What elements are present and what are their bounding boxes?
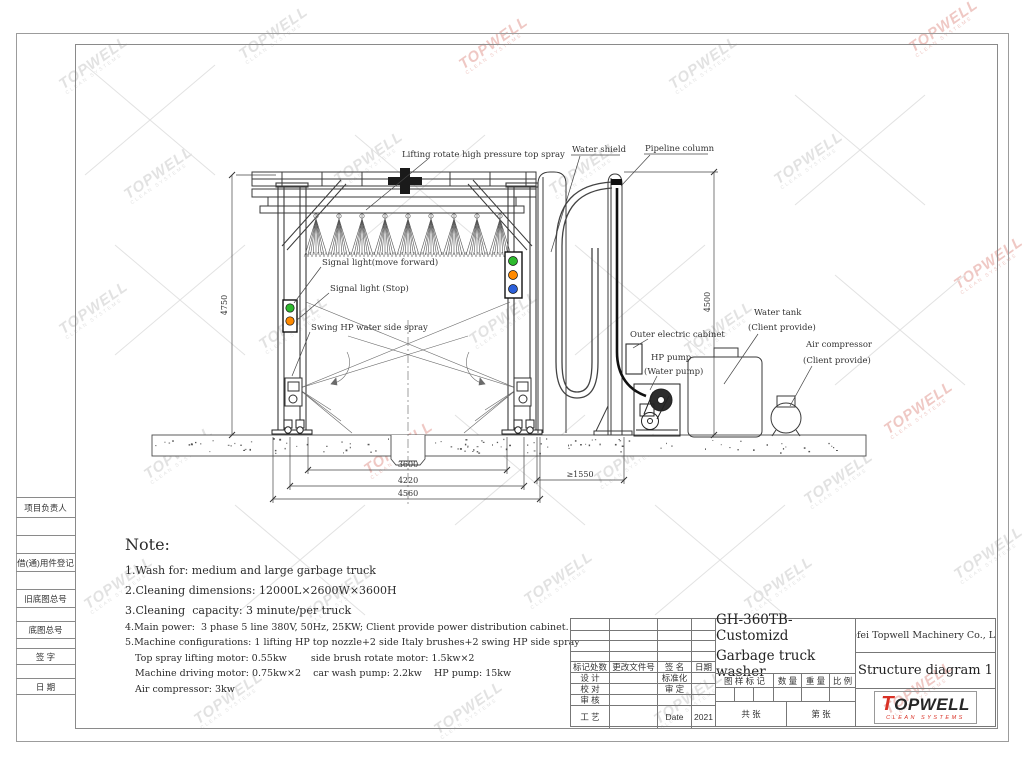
sheet-number-cell: 第 张	[786, 701, 855, 726]
title-block-revision-area: 标记处数 更改文件号 签 名 日期 设 计 标准化 校 对 审 定 审 核 工 …	[571, 619, 715, 726]
company-name: Hefei Topwell Machinery Co., Ltd.	[855, 619, 995, 652]
note-line: Machine driving motor: 0.75kw×2 car wash…	[125, 668, 575, 679]
ground-slab	[152, 435, 866, 456]
sheets-total-cell: 共 张	[715, 701, 786, 726]
rev-cell	[609, 640, 657, 651]
hp-hose-loop	[556, 182, 612, 398]
label-air-compressor-2: (Client provide)	[803, 355, 871, 366]
water-tank	[688, 348, 762, 437]
hose-top-fitting	[611, 179, 622, 185]
rev-cell	[657, 630, 691, 641]
rev-cell	[571, 651, 609, 662]
mark-cell	[773, 687, 801, 701]
pipeline-column	[594, 174, 632, 435]
label-outer-cabinet: Outer electric cabinet	[630, 330, 725, 340]
sig-cell	[609, 694, 657, 705]
sig-cell: 2021	[691, 705, 715, 728]
sig-cell: 审 定	[657, 683, 691, 694]
dim-clearance: ≥1550	[566, 470, 593, 479]
label-water-shield: Water shield	[572, 145, 627, 155]
rev-cell	[691, 640, 715, 651]
rev-header-cell: 日期	[691, 661, 715, 672]
rev-cell	[609, 651, 657, 662]
mark-header-cell: 重 量	[801, 673, 829, 687]
rev-cell	[657, 640, 691, 651]
note-title: Note:	[125, 535, 575, 554]
company-logo-cell: TOPWELL CLEAN SYSTEMS	[855, 688, 995, 726]
sig-cell: 校 对	[571, 683, 609, 694]
mark-header-cell: 数 量	[773, 673, 801, 687]
sig-cell	[691, 694, 715, 705]
drawing-sheet: TOPWELLCLEAN SYSTEMSTOPWELLCLEAN SYSTEMS…	[0, 0, 1024, 768]
title-block-product-area: GH-360TB-Customizd Garbage truck washer …	[715, 619, 855, 726]
label-hp-pump-2: (Water pump)	[644, 366, 703, 377]
mark-cell	[753, 687, 773, 701]
label-top-spray: Lifting rotate high pressure top spray	[402, 150, 565, 160]
note-line: 1.Wash for: medium and large garbage tru…	[125, 564, 575, 577]
document-title: Structure diagram 1	[855, 652, 995, 688]
note-line: 3.Cleaning capacity: 3 minute/per truck	[125, 604, 575, 617]
rev-cell	[571, 630, 609, 641]
rev-cell	[691, 651, 715, 662]
note-section: Note: 1.Wash for: medium and large garba…	[125, 535, 575, 695]
dim-height-right: 4500	[703, 292, 712, 312]
note-line: 2.Cleaning dimensions: 12000L×2600W×3600…	[125, 584, 575, 597]
sig-cell	[609, 683, 657, 694]
dim-width-inner: 3600	[398, 460, 418, 469]
note-line: Top spray lifting motor: 0.55kw side bru…	[125, 653, 575, 664]
logo-tagline: CLEAN SYSTEMS	[886, 715, 965, 721]
rev-cell	[609, 619, 657, 630]
rev-cell	[609, 630, 657, 641]
rev-cell	[571, 619, 609, 630]
sig-cell: 标准化	[657, 672, 691, 683]
label-swing-spray: Swing HP water side spray	[311, 323, 428, 333]
label-hp-pump: HP pump	[651, 353, 692, 363]
sig-cell: 审 核	[571, 694, 609, 705]
rev-cell	[691, 619, 715, 630]
rev-header-cell: 更改文件号	[609, 661, 657, 672]
note-line: Air compressor: 3kw	[125, 684, 575, 695]
mark-header-cell: 图 样 标 记	[715, 673, 773, 687]
label-water-tank-2: (Client provide)	[748, 322, 816, 333]
dim-height-left: 4750	[220, 295, 229, 315]
rev-header-cell: 签 名	[657, 661, 691, 672]
air-compressor	[771, 396, 801, 436]
sig-cell	[657, 694, 691, 705]
sig-cell: 设 计	[571, 672, 609, 683]
hp-pump-unit	[634, 384, 680, 436]
signal-light-right	[505, 252, 522, 298]
outer-electric-cabinet	[626, 344, 642, 374]
label-air-compressor: Air compressor	[805, 340, 873, 350]
top-spray-fans	[304, 213, 512, 257]
signal-light-left	[283, 300, 297, 332]
sig-cell: 工 艺	[571, 705, 609, 728]
mark-cell	[715, 687, 734, 701]
mark-cell	[734, 687, 753, 701]
title-block: 标记处数 更改文件号 签 名 日期 设 计 标准化 校 对 审 定 审 核 工 …	[570, 618, 996, 727]
leader-lines	[292, 154, 812, 406]
rev-cell	[657, 651, 691, 662]
drive-wheels	[272, 420, 542, 434]
mark-cell	[829, 687, 855, 701]
sig-cell: Date	[657, 705, 691, 728]
sig-cell	[691, 683, 715, 694]
sig-cell	[609, 705, 657, 728]
logo-wordmark: TOPWELL	[881, 694, 970, 714]
rev-cell	[691, 630, 715, 641]
rev-cell	[571, 640, 609, 651]
dim-width-mid: 4220	[398, 476, 418, 485]
sig-cell	[691, 672, 715, 683]
label-water-tank: Water tank	[754, 308, 802, 318]
mark-cell	[801, 687, 829, 701]
label-signal-stop: Signal light (Stop)	[330, 283, 409, 294]
label-pipeline-column: Pipeline column	[645, 144, 715, 154]
rev-cell	[657, 619, 691, 630]
topwell-logo: TOPWELL CLEAN SYSTEMS	[874, 691, 977, 724]
label-signal-forward: Signal light(move forward)	[322, 257, 438, 268]
sig-cell	[609, 672, 657, 683]
note-line: 5.Machine configurations: 1 lifting HP t…	[125, 637, 575, 648]
title-block-company-area: Hefei Topwell Machinery Co., Ltd. Struct…	[855, 619, 995, 726]
rev-header-cell: 标记处数	[571, 661, 609, 672]
note-line: 4.Main power: 3 phase 5 line 380V, 50Hz,…	[125, 622, 575, 633]
mark-header-cell: 比 例	[829, 673, 855, 687]
model-number: GH-360TB-Customizd	[716, 612, 855, 644]
dim-width-outer: 4560	[398, 489, 418, 498]
